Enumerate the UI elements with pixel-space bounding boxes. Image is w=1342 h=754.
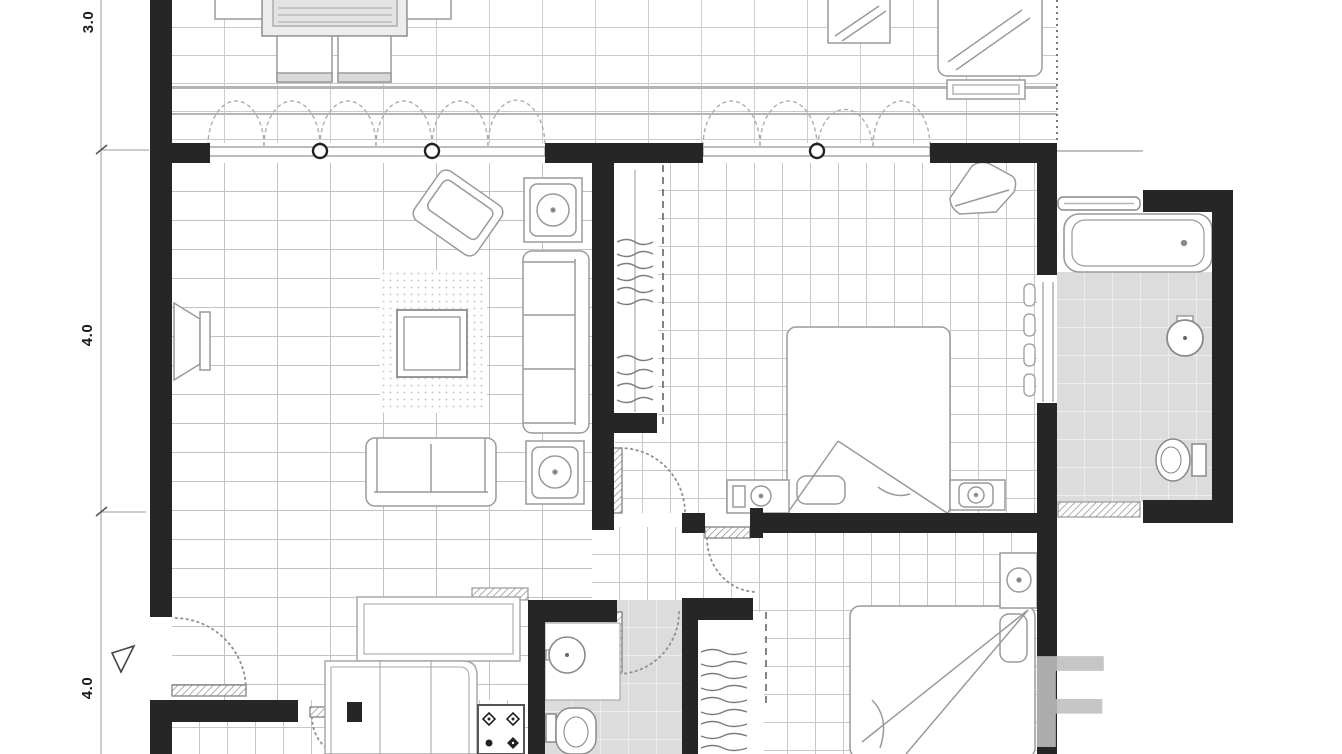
entrance-arrow-icon	[112, 646, 134, 672]
bathroom-1-tub-zone	[1057, 210, 1212, 272]
wall-closet-1	[592, 160, 614, 530]
wall-top-a	[150, 143, 210, 163]
dimension-label-bottom: 4.0	[73, 669, 101, 707]
balcony-floor	[172, 0, 1057, 143]
dimension-strip	[96, 0, 149, 754]
bathroom-1-window-left	[1040, 282, 1057, 402]
balcony-tile-accent	[172, 113, 1057, 115]
bedroom-1-floor	[615, 163, 1037, 513]
wall-right-upper	[1037, 143, 1057, 275]
dimension-label-top: 3.0	[74, 3, 102, 41]
wall-top-b	[545, 143, 703, 163]
dimension-label-middle: 4.0	[73, 316, 101, 354]
wall-closet-1-bottom	[592, 413, 657, 433]
wall-bathroom-2-left	[528, 600, 545, 754]
closet-2-interior	[698, 612, 764, 754]
wall-left-upper	[150, 0, 172, 617]
bathroom-1-floor	[1057, 272, 1212, 502]
wall-closet-partition	[682, 598, 698, 754]
wall-kitchen-door-post	[347, 702, 362, 722]
bathroom-1-sliding-door	[1058, 197, 1140, 210]
wall-bedroom-1-bottom	[750, 513, 1057, 533]
bathroom-2-floor	[545, 600, 682, 754]
floor-plan: 3.0 4.0 4.0 F	[0, 0, 1342, 754]
wall-bathroom-1-bottom	[1143, 500, 1233, 523]
wall-bottom-left	[150, 700, 298, 722]
balcony-tile-accent	[172, 86, 1057, 89]
wall-bedroom-1-post	[682, 513, 705, 533]
bathroom-1-window-bottom	[1058, 502, 1140, 517]
watermark-letter: F	[1028, 636, 1109, 754]
closet-1-interior	[614, 163, 658, 415]
wall-door-hinge-post	[750, 508, 763, 538]
living-room-rug	[380, 270, 487, 413]
wall-bathroom-1-right	[1212, 190, 1233, 523]
